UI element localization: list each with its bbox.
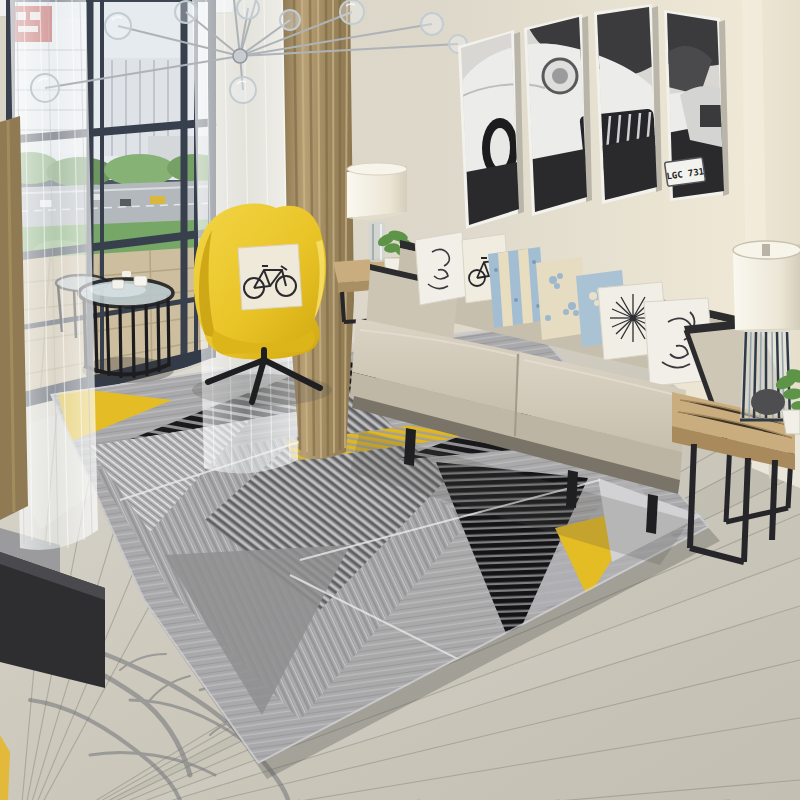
scene-canvas: LGC 731 [0, 0, 800, 800]
pillow-blue-stripe [488, 247, 546, 328]
pillow-face-print-1 [415, 232, 468, 305]
license-plate: LGC 731 [665, 157, 706, 186]
chandelier-hub [233, 49, 247, 63]
living-room-scene: LGC 731 [0, 0, 800, 800]
chair-bicycle-pillow [238, 244, 302, 310]
right-lamp-cage-base [740, 330, 794, 420]
